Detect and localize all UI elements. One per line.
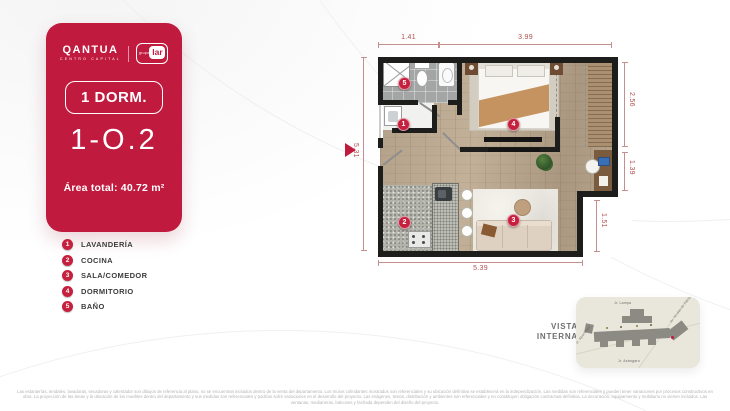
dimension-line [624, 62, 625, 147]
stove [408, 231, 431, 248]
vista-interna-label: VISTA INTERNA [512, 322, 578, 342]
legend-item-sala-comedor: 3 SALA/COMEDOR [62, 270, 147, 281]
bar-stool [461, 207, 473, 219]
wall [378, 251, 583, 257]
minimap-unit-marker [671, 336, 674, 339]
legend-label: BAÑO [81, 302, 105, 311]
dimension-bottom: 5.39 [378, 265, 583, 272]
bar-stool [461, 189, 473, 201]
minimap-tree [606, 327, 608, 329]
brand-subtitle: CENTRO CAPITAL [60, 58, 121, 62]
legend-label: COCINA [81, 256, 113, 265]
flyer-page: QANTUA CENTRO CAPITAL grupo lar 1 DORM. … [0, 0, 730, 411]
nightstand-left [465, 61, 478, 75]
tv-console [484, 137, 542, 142]
plan-exterior [583, 197, 632, 257]
dimension-right-mid: 1.39 [628, 160, 635, 175]
wall [577, 191, 583, 257]
dimension-line [378, 262, 583, 263]
entrance-arrow-icon [345, 143, 356, 157]
minimap-building [616, 339, 624, 347]
plan-badge-cocina: 2 [398, 216, 411, 229]
legend-item-dormitorio: 4 DORMITORIO [62, 286, 147, 297]
plan-badge-sala: 3 [507, 214, 520, 227]
wall [457, 57, 462, 115]
legend-item-lavanderia: 1 LAVANDERÍA [62, 239, 147, 250]
dimension-right-top: 2.56 [628, 92, 635, 107]
toilet [416, 70, 428, 87]
grupo-lar-prefix: grupo [139, 51, 149, 55]
dimension-line [363, 57, 364, 251]
minimap-tree [620, 326, 622, 328]
vista-line1: VISTA [512, 322, 578, 332]
minimap-building [632, 338, 640, 346]
unit-type-badge: 1 DORM. [65, 81, 163, 114]
toilet-tank [414, 62, 430, 69]
plan-badge-banio: 5 [398, 77, 411, 90]
brand-name: QANTUA [60, 45, 121, 56]
legend-label: DORMITORIO [81, 287, 134, 296]
unit-info-card: QANTUA CENTRO CAPITAL grupo lar 1 DORM. … [46, 23, 182, 232]
bedroom-closet [588, 61, 612, 147]
minimap-building [622, 316, 652, 323]
window [378, 105, 383, 138]
legal-footer: Las estanterías, tendales, lavadoras, se… [15, 389, 715, 405]
legend-label: LAVANDERÍA [81, 240, 133, 249]
kitchen-sink [435, 187, 452, 201]
bathroom-sink [438, 62, 455, 87]
floor-plan: 5 1 4 2 3 1.41 3.99 2.56 1.39 1.51 5.39 … [372, 50, 632, 300]
dimension-line [596, 200, 597, 252]
legend-number-badge: 2 [62, 255, 73, 266]
bar-stool [461, 225, 473, 237]
site-minimap: Jr. Lampa Jr. Azángaro Jr. Apurímac Av. … [576, 297, 700, 368]
dining-table [514, 199, 531, 216]
legend-number-badge: 4 [62, 286, 73, 297]
disclaimer-text: Las estanterías, tendales, lavadoras, se… [15, 389, 715, 405]
dimension-top-right: 3.99 [439, 34, 612, 41]
room-legend: 1 LAVANDERÍA 2 COCINA 3 SALA/COMEDOR 4 D… [62, 239, 147, 317]
plan-badge-lavanderia: 1 [397, 118, 410, 131]
minimap-tree [650, 324, 652, 326]
wall [378, 138, 383, 148]
dashed-closet-line [585, 63, 586, 147]
wall [378, 166, 383, 257]
wall [378, 100, 418, 105]
laptop [598, 157, 610, 166]
dimension-line [439, 44, 612, 45]
tv-console-shelf [488, 148, 540, 152]
grupo-lar-box: lar [149, 46, 165, 59]
minimap-tree [636, 325, 638, 327]
minimap-building [648, 337, 656, 345]
legend-number-badge: 5 [62, 301, 73, 312]
plant [536, 154, 552, 170]
dimension-line [624, 152, 625, 191]
minimap-street-top: Jr. Lampa [614, 301, 631, 305]
wall [555, 117, 560, 152]
nightstand-right [550, 61, 563, 75]
legend-label: SALA/COMEDOR [81, 271, 147, 280]
wall [378, 57, 618, 63]
grupo-lar-logo: grupo lar [136, 43, 168, 64]
plan-badge-dormitorio: 4 [507, 118, 520, 131]
minimap-building [600, 339, 608, 347]
wall [378, 57, 383, 105]
qantua-logo: QANTUA CENTRO CAPITAL [60, 45, 121, 62]
legend-item-cocina: 2 COCINA [62, 255, 147, 266]
unit-code: 1-O.2 [46, 124, 182, 157]
wall [612, 57, 618, 197]
area-total-label: Área total: 40.72 m² [46, 182, 182, 194]
desk-paper [599, 176, 608, 186]
dimension-top-left: 1.41 [378, 34, 439, 41]
logo-row: QANTUA CENTRO CAPITAL grupo lar [46, 43, 182, 64]
minimap-street-left: Jr. Apurímac [576, 325, 591, 345]
legend-number-badge: 1 [62, 239, 73, 250]
legend-item-banio: 5 BAÑO [62, 301, 147, 312]
minimap-street-bottom: Jr. Azángaro [618, 359, 640, 363]
vista-line2: INTERNA [512, 332, 578, 342]
legend-number-badge: 3 [62, 270, 73, 281]
dimension-right-lower: 1.51 [600, 213, 607, 228]
dimension-line [378, 44, 439, 45]
logo-divider [128, 46, 129, 62]
